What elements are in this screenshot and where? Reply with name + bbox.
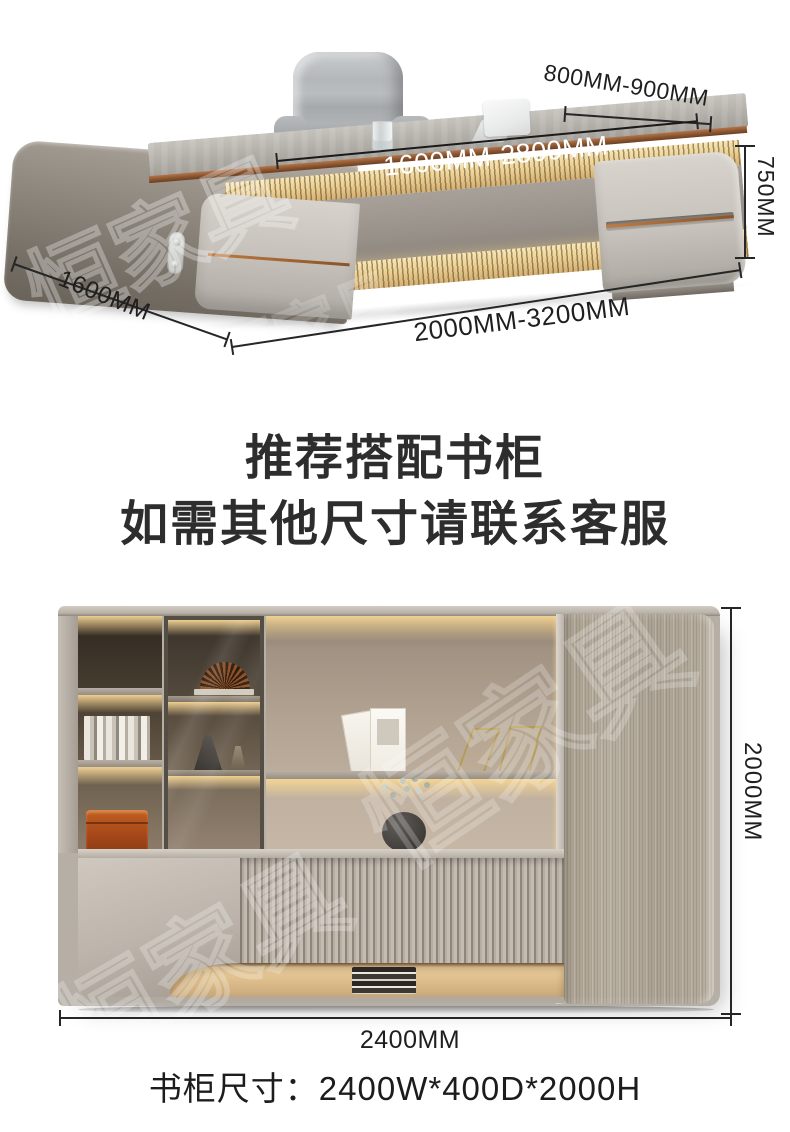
base-top-lip xyxy=(78,849,564,858)
bookcase-left-frame xyxy=(58,616,78,853)
heading-contact-service: 如需其他尺寸请联系客服 xyxy=(0,494,790,556)
glass-cabinet-shelf xyxy=(168,770,260,776)
bookcase-floor-shadow xyxy=(78,1005,714,1014)
led-glow xyxy=(168,702,260,716)
ornament-book-stand xyxy=(194,689,254,695)
bookcase-open-shelves-left xyxy=(78,616,162,853)
display-book xyxy=(370,708,406,774)
bookcase-photo xyxy=(58,606,720,1006)
led-glow xyxy=(266,779,562,799)
shelf-board xyxy=(78,688,162,695)
bookcase-size-caption: 书柜尺寸：2400W*400D*2000H xyxy=(0,1062,790,1110)
orange-storage-box xyxy=(86,810,148,852)
bookcase-open-display xyxy=(266,616,562,853)
niche-book-stack xyxy=(352,967,416,994)
bookcase-glass-cabinet xyxy=(164,616,264,853)
dimension-label-bookcase-height: 2000MM xyxy=(738,742,766,841)
heading-recommendation: 推荐搭配书柜 xyxy=(0,428,790,490)
water-glass xyxy=(372,121,393,151)
tablet-screen xyxy=(483,99,531,137)
base-bottom-strip xyxy=(78,997,564,1003)
product-detail-image: 800MM-900MM 1600MM-2800MM 750MM 1600MM 2… xyxy=(0,0,790,1132)
plant-sprigs xyxy=(404,786,410,792)
nautilus-ornament xyxy=(200,662,250,689)
dimension-line-bookcase-height xyxy=(730,608,732,1014)
led-glow xyxy=(266,616,562,642)
gold-bookend xyxy=(455,728,500,776)
gold-bookend xyxy=(498,726,542,774)
dimension-line-bookcase-width xyxy=(60,1017,731,1019)
power-outlet xyxy=(167,231,186,274)
books-on-shelf xyxy=(84,716,150,760)
led-glow xyxy=(168,620,260,636)
round-vase xyxy=(382,812,426,852)
led-glow xyxy=(78,695,162,713)
shelf-board xyxy=(78,760,162,767)
led-glow xyxy=(78,616,162,636)
small-vase xyxy=(230,746,246,770)
dimension-line-desk-height xyxy=(744,146,746,258)
base-lighted-niche xyxy=(170,963,564,997)
bookcase-wood-door xyxy=(564,614,714,1004)
dimension-label-bookcase-width: 2400MM xyxy=(330,1026,490,1055)
display-shelf xyxy=(266,771,562,779)
led-glow xyxy=(78,767,162,785)
base-fluted-doors xyxy=(240,858,564,966)
led-glow xyxy=(168,776,260,790)
dimension-label-desk-height: 750MM xyxy=(752,156,779,238)
bookcase-base-cabinet xyxy=(78,853,564,1003)
desk-left-drawer-unit xyxy=(194,192,360,319)
dark-vase xyxy=(194,736,222,770)
glass-cabinet-shelf xyxy=(168,696,260,702)
